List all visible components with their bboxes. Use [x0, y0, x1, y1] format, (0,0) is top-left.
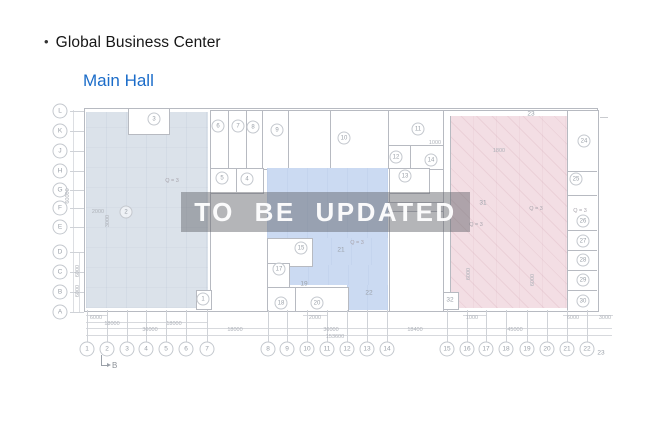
- col-label: 18: [499, 342, 514, 357]
- room-number: 27: [577, 235, 590, 248]
- room-number: 20: [311, 297, 324, 310]
- dimension-label-vertical: 3000: [105, 215, 111, 227]
- dimension-label-vertical: 6000: [75, 265, 81, 277]
- col-label: 14: [380, 342, 395, 357]
- col-label: 4: [139, 342, 154, 357]
- grid-tick: [70, 208, 84, 209]
- room-number: 32: [446, 297, 453, 304]
- grid-tick: [70, 131, 84, 132]
- grid-tick: [527, 310, 528, 342]
- col-label: 1: [80, 342, 95, 357]
- row-label: L: [53, 104, 68, 119]
- grid-tick: [587, 310, 588, 342]
- wall: [567, 290, 597, 291]
- grid-tick: [70, 312, 84, 313]
- grid-tick: [87, 310, 88, 342]
- grid-tick: [207, 310, 208, 342]
- room-number: 12: [390, 151, 403, 164]
- col-label: 21: [560, 342, 575, 357]
- dimension-label: 3000: [599, 315, 611, 321]
- grid-tick: [547, 310, 548, 342]
- grid-tick: [70, 151, 84, 152]
- dim-line-vertical: [79, 252, 80, 312]
- grid-tick: [70, 227, 84, 228]
- grid-tick: [127, 310, 128, 342]
- dimension-label: 6000: [567, 315, 579, 321]
- room-number: 6: [212, 120, 225, 133]
- zone-label: Q = 3: [573, 208, 587, 214]
- zone-label: Q = 3: [469, 222, 483, 228]
- watermark-band: TO BE UPDATED: [181, 192, 470, 232]
- row-label: E: [53, 220, 68, 235]
- dimension-label: 18000: [104, 321, 119, 327]
- row-label: D: [53, 245, 68, 260]
- zone-label: Q = 3: [350, 240, 364, 246]
- wall: [567, 230, 597, 231]
- wall: [567, 195, 597, 196]
- room-number: 26: [577, 215, 590, 228]
- bullet-icon: •: [44, 34, 49, 49]
- dimension-label: 1000: [466, 315, 478, 321]
- col-label: 10: [300, 342, 315, 357]
- room-number: 10: [338, 132, 351, 145]
- grid-tick: [70, 252, 84, 253]
- dimension-label: 6000: [90, 315, 102, 321]
- dimension-label: 18000: [166, 321, 181, 327]
- dimension-label: 45000: [507, 327, 522, 333]
- col-label: 2: [100, 342, 115, 357]
- room-number: 28: [577, 254, 590, 267]
- col-label: 19: [520, 342, 535, 357]
- row-label: B: [53, 285, 68, 300]
- wall: [567, 270, 597, 271]
- col-label: 15: [440, 342, 455, 357]
- grid-tick: [186, 310, 187, 342]
- grid-tick: [447, 310, 448, 342]
- grid-tick: [268, 310, 269, 342]
- wall: [228, 110, 229, 168]
- col-label: 13: [360, 342, 375, 357]
- room-number: 17: [273, 263, 286, 276]
- dim-line: [86, 335, 612, 336]
- col-label: 8: [261, 342, 276, 357]
- col-label: 16: [460, 342, 475, 357]
- dim-line: [86, 328, 612, 329]
- col-label: 7: [200, 342, 215, 357]
- zone-label: Q = 3: [529, 206, 543, 212]
- watermark-text: TO BE UPDATED: [194, 197, 456, 228]
- room-number: 15: [295, 242, 308, 255]
- room-number: 2: [120, 206, 133, 219]
- room-number: 19: [300, 281, 307, 288]
- page-title-text: Global Business Center: [56, 34, 221, 51]
- row-label: C: [53, 265, 68, 280]
- room-number: 8: [247, 121, 260, 134]
- col-label: 17: [479, 342, 494, 357]
- grid-tick: [486, 310, 487, 342]
- room-number: 14: [425, 154, 438, 167]
- col-label: 3: [120, 342, 135, 357]
- wall: [262, 110, 263, 168]
- inner-dimension: 2000: [92, 209, 104, 215]
- inner-dimension: 1800: [493, 148, 505, 154]
- room-number: 4: [241, 173, 254, 186]
- room-number: 23: [527, 111, 534, 118]
- room-number: 25: [570, 173, 583, 186]
- grid-tick: [287, 310, 288, 342]
- grid-tick: [367, 310, 368, 342]
- main-hall-link[interactable]: Main Hall: [83, 71, 154, 91]
- wall: [330, 110, 331, 168]
- room-number: 22: [365, 290, 372, 297]
- room-number: 30: [577, 295, 590, 308]
- wall: [567, 250, 597, 251]
- col-label: 9: [280, 342, 295, 357]
- dimension-label-vertical: 60000: [65, 188, 71, 203]
- inner-dimension: 1000: [429, 140, 441, 146]
- row-label: A: [53, 305, 68, 320]
- wall: [236, 168, 237, 192]
- dimension-label: 18400: [407, 327, 422, 333]
- dimension-label: 2000: [309, 315, 321, 321]
- page-title: •Global Business Center: [44, 34, 221, 52]
- col-label: 12: [340, 342, 355, 357]
- wall: [288, 110, 289, 168]
- arrow-right-icon: [107, 363, 111, 367]
- room-number: 21: [337, 247, 344, 254]
- room-number: 18: [275, 297, 288, 310]
- col-label: 23: [597, 350, 604, 357]
- room-number: 24: [578, 135, 591, 148]
- grid-tick: [307, 310, 308, 342]
- dimension-label: 36000: [142, 327, 157, 333]
- row-label: K: [53, 124, 68, 139]
- zone-label: Q = 3: [165, 178, 179, 184]
- room-number: 11: [412, 123, 425, 136]
- dimension-label-vertical: 6000: [530, 274, 536, 286]
- dim-line-vertical: [73, 110, 74, 312]
- col-label: 20: [540, 342, 555, 357]
- room-number: 3: [148, 113, 161, 126]
- top-right-dash: [600, 117, 608, 118]
- dimension-label-vertical: 6000: [466, 268, 472, 280]
- room-number: 9: [271, 124, 284, 137]
- room-number: 1: [197, 293, 210, 306]
- wall: [246, 110, 247, 168]
- room-number: 5: [216, 172, 229, 185]
- slide-canvas: •Global Business Center Main Hall: [0, 0, 660, 440]
- col-label: 6: [179, 342, 194, 357]
- room-number: 7: [232, 120, 245, 133]
- row-label: J: [53, 144, 68, 159]
- room-number: 31: [479, 200, 486, 207]
- grid-tick: [70, 171, 84, 172]
- col-label: 11: [320, 342, 335, 357]
- col-label: 22: [580, 342, 595, 357]
- grid-tick: [506, 310, 507, 342]
- grid-tick: [70, 190, 84, 191]
- col-label: 5: [159, 342, 174, 357]
- grid-tick: [387, 310, 388, 342]
- dimension-label: 153600: [326, 334, 344, 340]
- wall: [567, 110, 568, 310]
- row-label: H: [53, 164, 68, 179]
- room-number: 13: [399, 170, 412, 183]
- grid-tick: [347, 310, 348, 342]
- room-number: 29: [577, 274, 590, 287]
- grid-tick: [70, 111, 84, 112]
- dimension-label: 18000: [227, 327, 242, 333]
- grid-tick: [146, 310, 147, 342]
- section-marker-label: B: [112, 361, 117, 370]
- dimension-label: 36000: [323, 327, 338, 333]
- wall: [567, 171, 597, 172]
- dimension-label-vertical: 6000: [75, 285, 81, 297]
